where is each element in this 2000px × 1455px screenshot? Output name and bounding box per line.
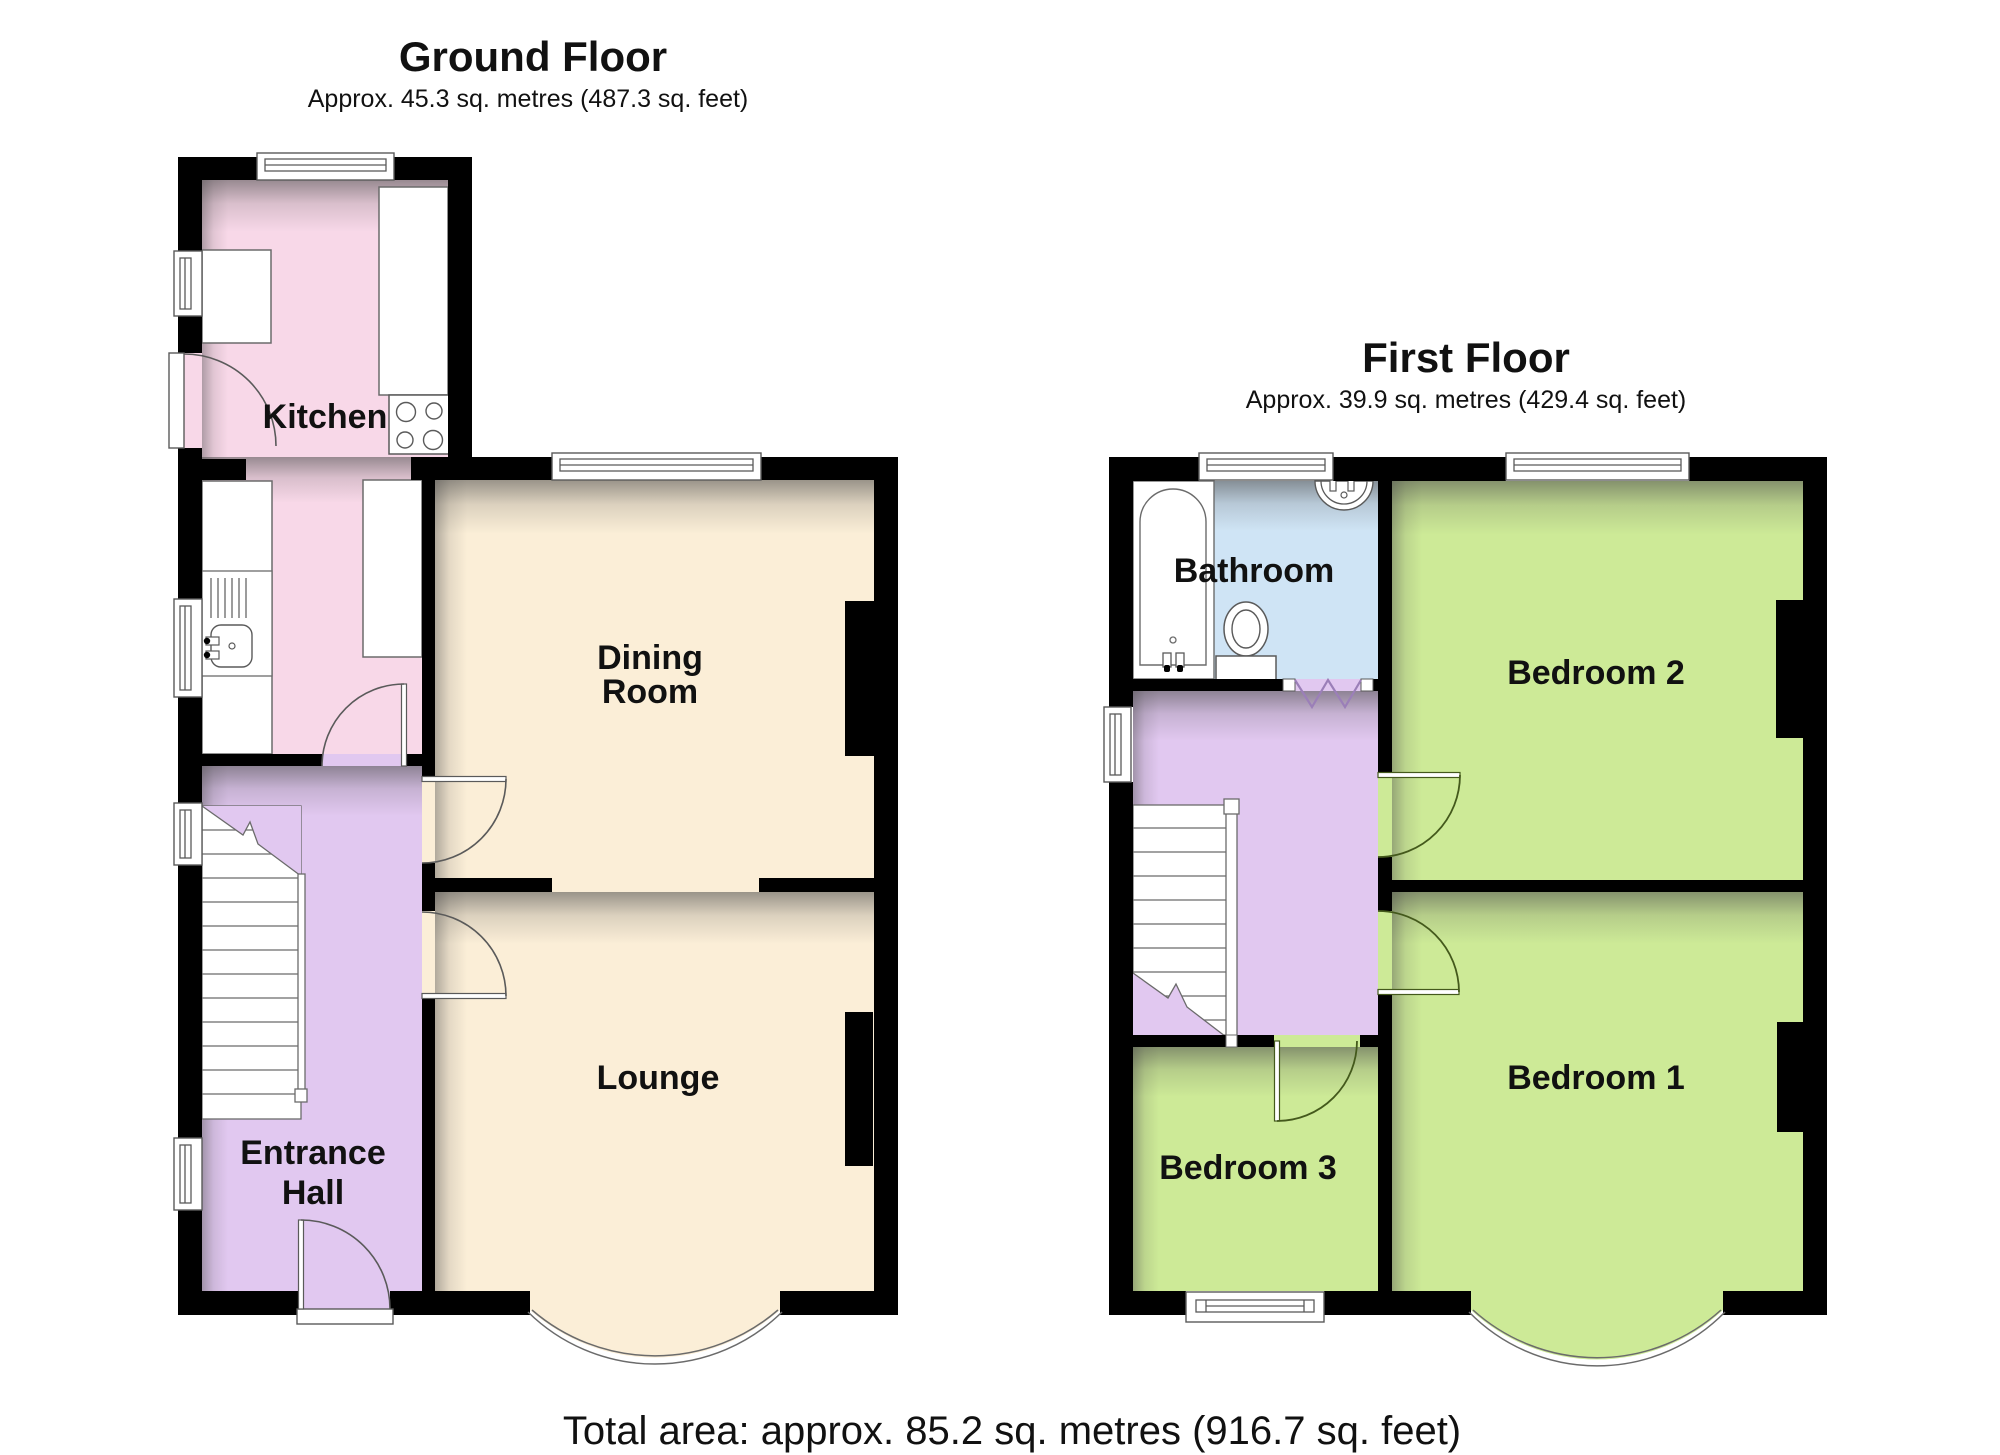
svg-text:Approx. 39.9 sq. metres (429.4: Approx. 39.9 sq. metres (429.4 sq. feet) bbox=[1246, 386, 1687, 414]
svg-text:First Floor: First Floor bbox=[1362, 334, 1570, 381]
svg-text:Bedroom 1: Bedroom 1 bbox=[1507, 1059, 1685, 1097]
svg-text:Bedroom 2: Bedroom 2 bbox=[1507, 654, 1685, 692]
svg-text:Bathroom: Bathroom bbox=[1174, 552, 1335, 590]
svg-text:Bedroom 3: Bedroom 3 bbox=[1159, 1149, 1337, 1187]
svg-text:Hall: Hall bbox=[282, 1174, 344, 1212]
svg-text:Entrance: Entrance bbox=[240, 1134, 386, 1172]
svg-text:Dining: Dining bbox=[597, 639, 703, 677]
svg-text:Kitchen: Kitchen bbox=[263, 398, 388, 436]
svg-text:Total area: approx. 85.2 sq. m: Total area: approx. 85.2 sq. metres (916… bbox=[563, 1409, 1461, 1453]
svg-text:Approx. 45.3 sq. metres (487.3: Approx. 45.3 sq. metres (487.3 sq. feet) bbox=[308, 85, 749, 113]
svg-text:Ground Floor: Ground Floor bbox=[399, 33, 667, 80]
svg-text:Room: Room bbox=[602, 673, 698, 711]
svg-text:Lounge: Lounge bbox=[597, 1059, 720, 1097]
